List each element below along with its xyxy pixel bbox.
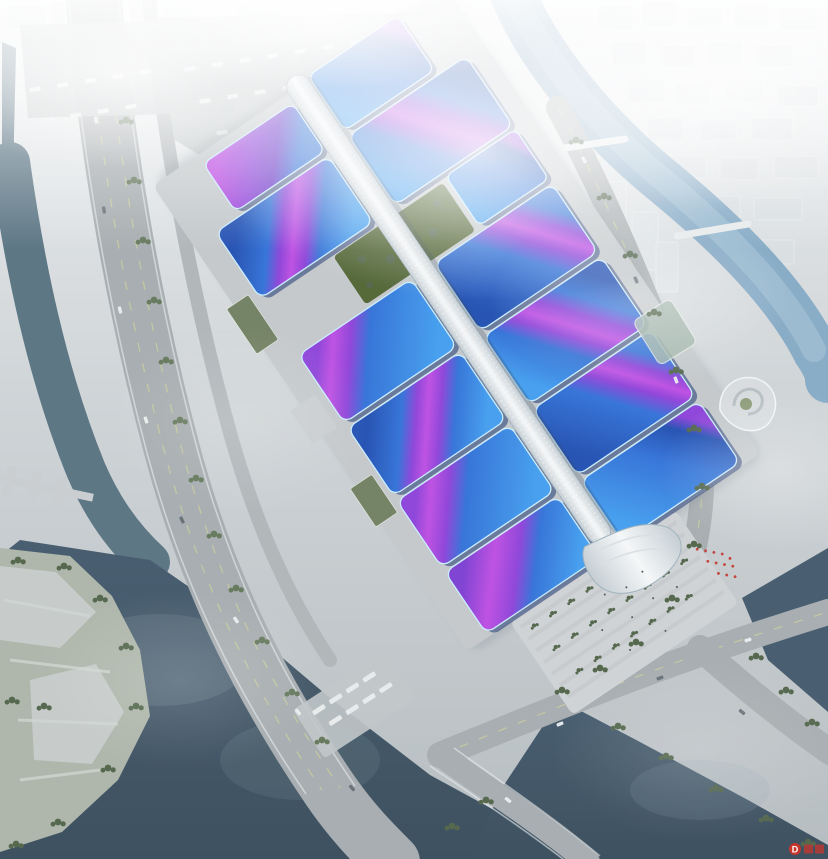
fog-layer bbox=[0, 0, 828, 859]
watermark-glyph-block bbox=[815, 845, 824, 854]
aerial-rendering: Hazy aerial rendering of a riverside exh… bbox=[0, 0, 828, 859]
watermark-glyph-block bbox=[804, 845, 813, 854]
watermark-letter: D bbox=[792, 844, 799, 854]
scene-canvas: Hazy aerial rendering of a riverside exh… bbox=[0, 0, 828, 859]
watermark: D bbox=[789, 843, 824, 855]
